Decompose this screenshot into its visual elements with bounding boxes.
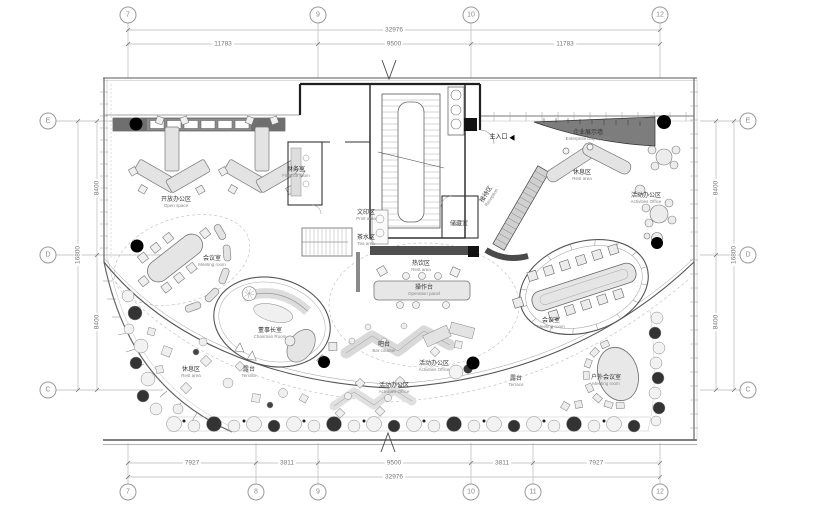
- label-bar-counter: 吧台Bar counter: [372, 342, 395, 354]
- grid-bubble-right-D: D: [740, 247, 757, 264]
- dim-bottom-seg-5: 7927: [587, 460, 605, 467]
- label-activities-c1: 活动办公区Activities Office: [419, 361, 450, 373]
- dim-right-seg-1: 8400: [713, 179, 720, 197]
- label-tea-area: 茶水区Tea area: [357, 235, 375, 247]
- grid-bubble-bottom-9: 9: [310, 484, 327, 501]
- entrance-arrow-icon: [510, 135, 515, 141]
- grid-bubble-bottom-12: 12: [652, 484, 669, 501]
- label-rest-left: 休息区Rest area: [181, 367, 201, 379]
- grid-bubble-left-D: D: [40, 247, 57, 264]
- grid-bubble-bottom-10: 10: [463, 484, 480, 501]
- label-open-space: 开放办公区Open space: [161, 197, 191, 209]
- label-meeting-left: 会议室Meeting room: [198, 256, 226, 268]
- label-activities-right: 活动办公区Activities Office: [631, 193, 662, 205]
- label-rest-right: 休息区Rest area: [572, 170, 592, 182]
- label-display-wall: 企业展示墙Enterprise display wall: [566, 130, 611, 142]
- grid-bubble-top-12: 12: [652, 7, 669, 24]
- label-hot-drink: 热饮区Rest area: [411, 261, 431, 273]
- dim-top-seg-1: 11783: [212, 41, 234, 48]
- grid-bubble-right-E: E: [740, 113, 757, 130]
- grid-bubble-right-C: C: [740, 382, 757, 399]
- label-chairman-room: 董事长室Chairman Room: [254, 328, 287, 340]
- dim-bottom-seg-2: 3811: [278, 460, 296, 467]
- oval-meeting-room: [502, 224, 661, 352]
- dim-top-seg-2: 9500: [385, 41, 403, 48]
- dim-bottom-seg-1: 7927: [183, 460, 201, 467]
- grid-bubble-bottom-7: 7: [120, 484, 137, 501]
- plan-linework: [0, 0, 817, 505]
- dim-left-seg-2: 8400: [94, 313, 101, 331]
- label-print-area: 文印区Print area: [356, 210, 376, 222]
- label-outdoor-meeting: 户外会议室Meeting room: [591, 375, 621, 387]
- core-stairs: [288, 84, 494, 292]
- grid-bubble-top-10: 10: [463, 7, 480, 24]
- label-meeting-oval: 会议室Meeting room: [537, 318, 565, 330]
- label-main-entrance: 主入口: [489, 135, 514, 142]
- planting-strip-bottom: [167, 417, 651, 433]
- grid-bubble-bottom-11: 11: [525, 484, 542, 501]
- label-activities-c2: 活动办公区Activities Office: [379, 383, 410, 395]
- label-terrace-left: 露台Terrace: [241, 367, 256, 379]
- grid-bubble-top-7: 7: [120, 7, 137, 24]
- bar-counter: [346, 322, 475, 379]
- grid-bubble-left-E: E: [40, 113, 57, 130]
- planting-strip-right: [648, 310, 665, 430]
- dim-left-seg-1: 8400: [94, 179, 101, 197]
- dim-right-total: 16800: [731, 244, 738, 266]
- dim-right-seg-2: 8400: [713, 313, 720, 331]
- dim-top-total: 32976: [383, 27, 405, 34]
- label-finance: 财务室Finance room: [282, 167, 310, 179]
- floor-plan-canvas: 7 9 10 12 7 8 9 10 11 12 E D C E D C 329…: [0, 0, 817, 505]
- label-storage: 储藏室: [450, 222, 468, 229]
- reception-ramp: [468, 166, 549, 258]
- grid-bubble-bottom-8: 8: [248, 484, 265, 501]
- label-operation-panel: 操作台Operation panel: [408, 285, 440, 297]
- label-terrace-right: 露台Terrace: [508, 376, 523, 388]
- dim-top-seg-3: 11783: [554, 41, 576, 48]
- grid-bubble-left-C: C: [40, 382, 57, 399]
- dim-bottom-total: 32976: [383, 474, 405, 481]
- grid-bubble-top-9: 9: [310, 7, 327, 24]
- dim-left-total: 16800: [75, 244, 82, 266]
- dim-bottom-seg-3: 9500: [385, 460, 403, 467]
- dim-bottom-seg-4: 3811: [493, 460, 511, 467]
